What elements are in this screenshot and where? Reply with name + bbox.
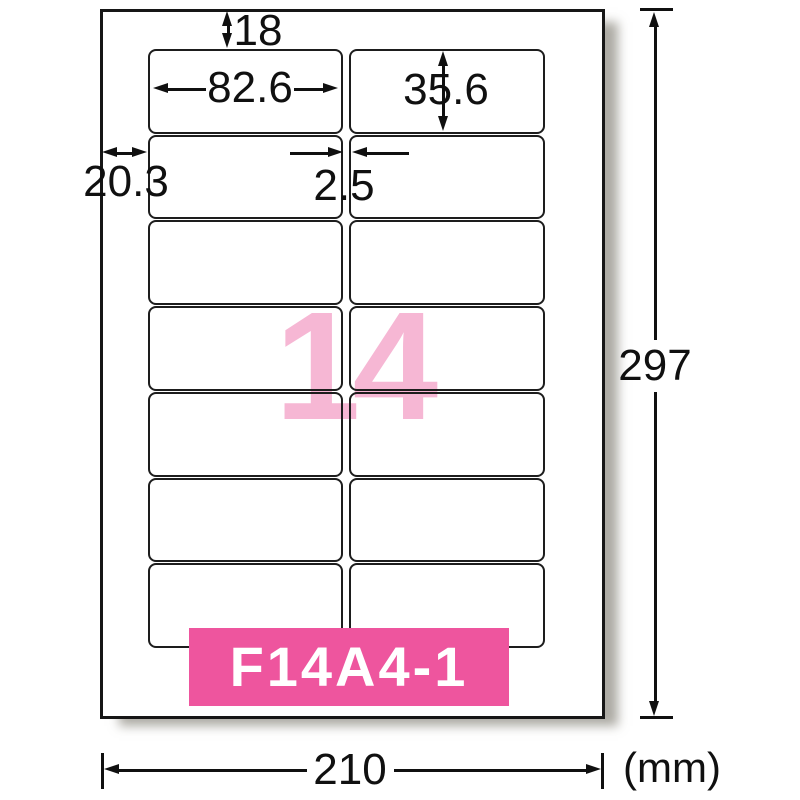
label-cell	[349, 306, 545, 391]
product-code-label: F14A4-1	[230, 639, 469, 695]
label-cell	[148, 220, 343, 305]
label-cell	[349, 220, 545, 305]
arrowhead-down-icon	[649, 701, 659, 716]
unit-label: (mm)	[620, 748, 724, 788]
label-cell	[349, 392, 545, 477]
dimension-line	[294, 88, 325, 91]
extension-tick	[640, 8, 673, 11]
label-cell	[148, 306, 343, 391]
label-cell	[349, 478, 545, 563]
label-cell	[148, 478, 343, 563]
label-sheet-diagram: 14 F14A4-1 18 82.6 35.6 20.3	[0, 0, 800, 800]
dim-page-width-value: 210	[306, 750, 394, 790]
extension-tick	[601, 753, 604, 789]
dim-column-gap-value: 2.5	[312, 166, 376, 206]
arrowhead-down-icon	[438, 116, 448, 131]
dimension-line	[117, 769, 307, 772]
dim-page-height-value: 297	[611, 346, 699, 386]
dim-top-margin-value: 18	[232, 11, 284, 51]
arrowhead-right-icon	[323, 83, 338, 93]
arrowhead-down-icon	[222, 33, 232, 48]
extension-tick	[640, 716, 673, 719]
arrowhead-right-icon	[586, 764, 601, 774]
arrowhead-right-icon	[328, 147, 343, 157]
dimension-line	[394, 769, 586, 772]
dimension-line	[654, 392, 657, 701]
arrowhead-right-icon	[132, 147, 147, 157]
dimension-line	[654, 25, 657, 340]
dimension-line	[365, 152, 409, 155]
dimension-line	[290, 152, 329, 155]
dim-label-width-value: 82.6	[204, 68, 296, 108]
dim-label-height-value: 35.6	[400, 70, 492, 110]
labels-grid	[148, 49, 545, 648]
label-cell	[148, 392, 343, 477]
product-code-badge: F14A4-1	[189, 628, 509, 706]
dim-left-margin-value: 20.3	[83, 162, 169, 202]
dimension-line	[166, 88, 206, 91]
label-cell	[349, 135, 545, 220]
